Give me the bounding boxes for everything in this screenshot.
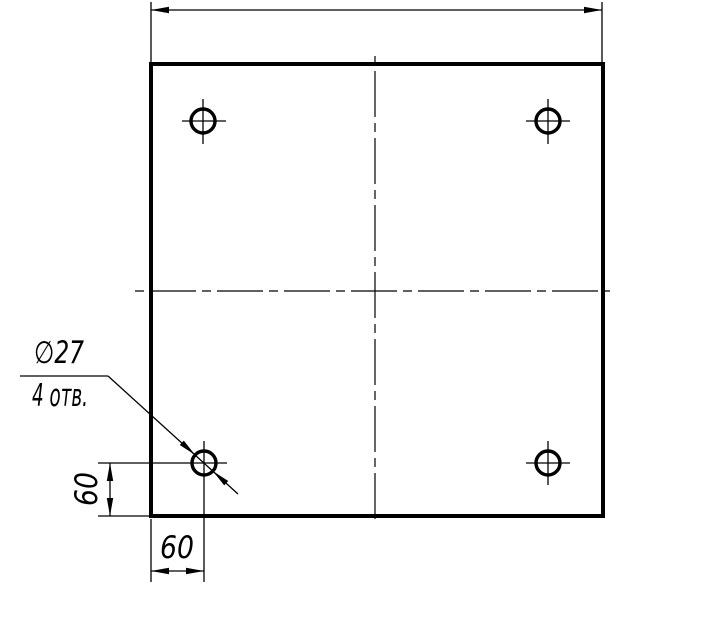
arrowhead-up-icon (107, 463, 113, 481)
arrowhead-upper-icon (180, 441, 195, 455)
hole-diameter-label: ∅27 (34, 335, 84, 371)
top-dimension (151, 2, 602, 62)
arrowhead-right-icon (584, 7, 602, 13)
hole-top-right (526, 99, 570, 144)
vertical-offset-dimension: 60 (69, 463, 150, 516)
plate-outline (151, 64, 603, 516)
arrowhead-left-icon (151, 568, 169, 574)
hole-callout: ∅27 4 отв. (20, 335, 238, 494)
horizontal-offset-dimension-label: 60 (160, 530, 194, 566)
hole-bottom-right (526, 441, 570, 485)
horizontal-offset-dimension: 60 (151, 519, 204, 582)
arrowhead-left-icon (151, 7, 169, 13)
vertical-offset-dimension-label: 60 (69, 472, 105, 506)
hole-top-left (182, 99, 226, 144)
arrowhead-down-icon (107, 498, 113, 516)
arrowhead-right-icon (186, 568, 204, 574)
drawing-canvas: 60 60 ∅27 4 отв. (0, 0, 713, 631)
technical-drawing: 60 60 ∅27 4 отв. (0, 0, 713, 631)
hole-count-label: 4 отв. (32, 378, 88, 414)
arrowhead-lower-icon (213, 471, 228, 485)
